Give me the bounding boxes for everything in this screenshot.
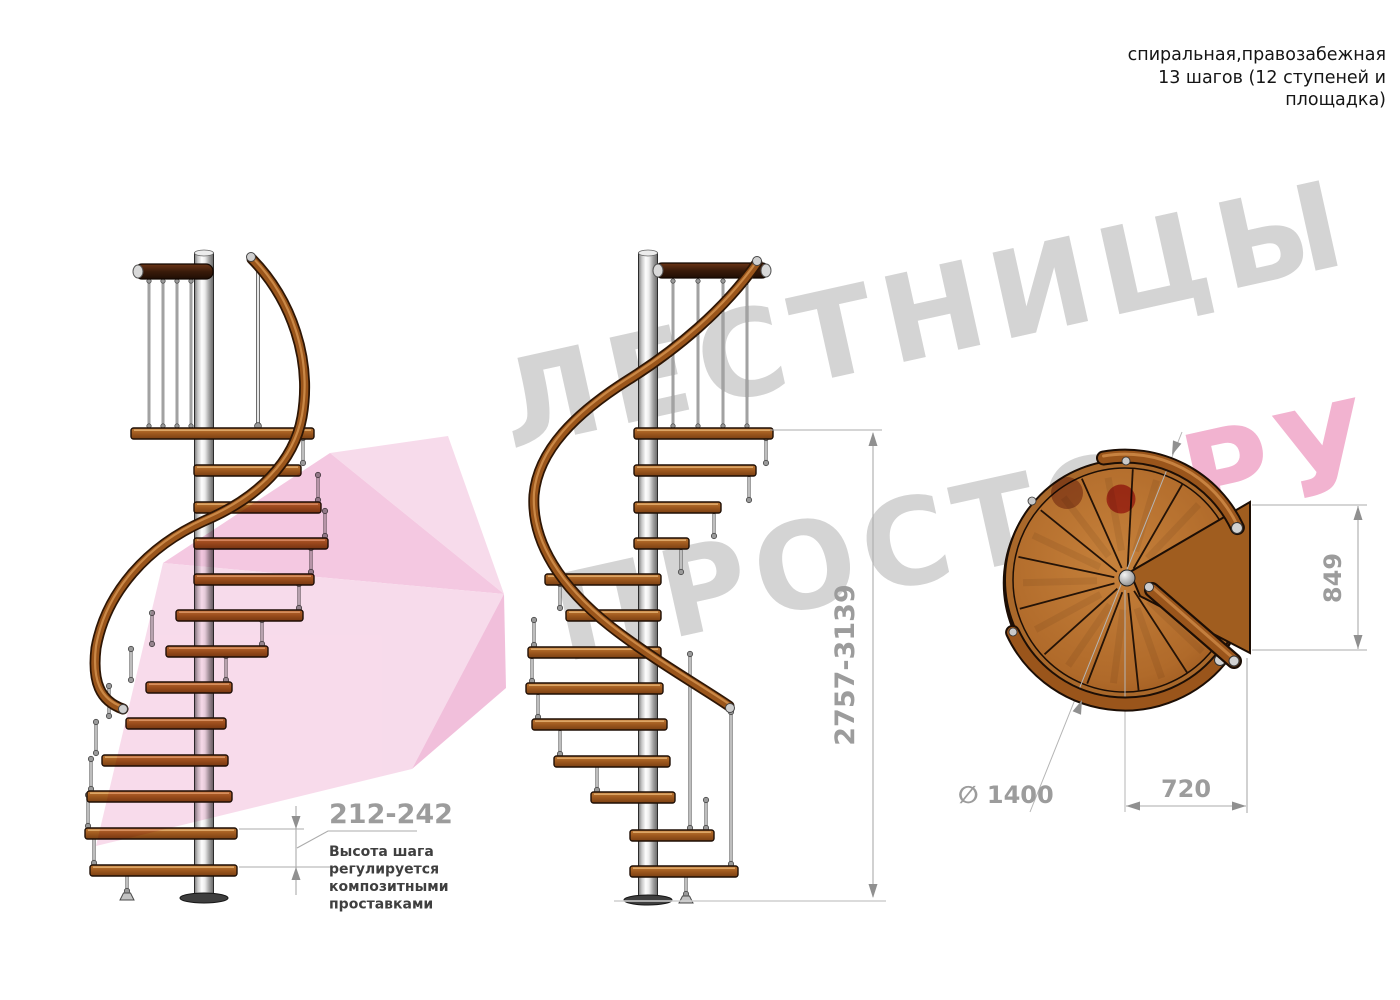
- svg-text:Высота шага: Высота шага: [329, 844, 434, 860]
- svg-text:композитными: композитными: [329, 879, 449, 895]
- svg-text:проставками: проставками: [329, 897, 433, 913]
- elevation-view-side: [526, 250, 773, 905]
- spec-line-3: площадка): [966, 89, 1386, 112]
- specification-text: спиральная,правозабежная 13 шагов (12 ст…: [966, 44, 1386, 112]
- drawing-page: ЛЕСТНИЦЫ ПРОСТОРУ: [0, 0, 1400, 1000]
- plan-view: [1004, 432, 1250, 812]
- svg-text:регулируется: регулируется: [329, 862, 439, 878]
- dimension-landing-depth: 849: [1252, 505, 1367, 650]
- dimension-total-height: 2757-3139: [770, 430, 882, 898]
- spec-line-1: спиральная,правозабежная: [966, 44, 1386, 67]
- dimension-step-height: 212-242 Высота шага регулируется компози…: [239, 799, 453, 913]
- elevation-view-front: [85, 250, 328, 903]
- diameter-value: ∅ 1400: [958, 781, 1054, 809]
- landing-width-value: 720: [1161, 775, 1211, 803]
- plan-center-pole-cap: [1119, 570, 1135, 586]
- spec-line-2: 13 шагов (12 ступеней и: [966, 67, 1386, 90]
- step-height-value: 212-242: [329, 799, 453, 830]
- total-height-value: 2757-3139: [830, 584, 861, 746]
- landing-depth-value: 849: [1319, 553, 1347, 603]
- step-height-note: Высота шага регулируется композитными пр…: [329, 844, 449, 913]
- staircase-technical-drawing: 2757-3139 212-242 Высота шага регулирует…: [0, 0, 1400, 1000]
